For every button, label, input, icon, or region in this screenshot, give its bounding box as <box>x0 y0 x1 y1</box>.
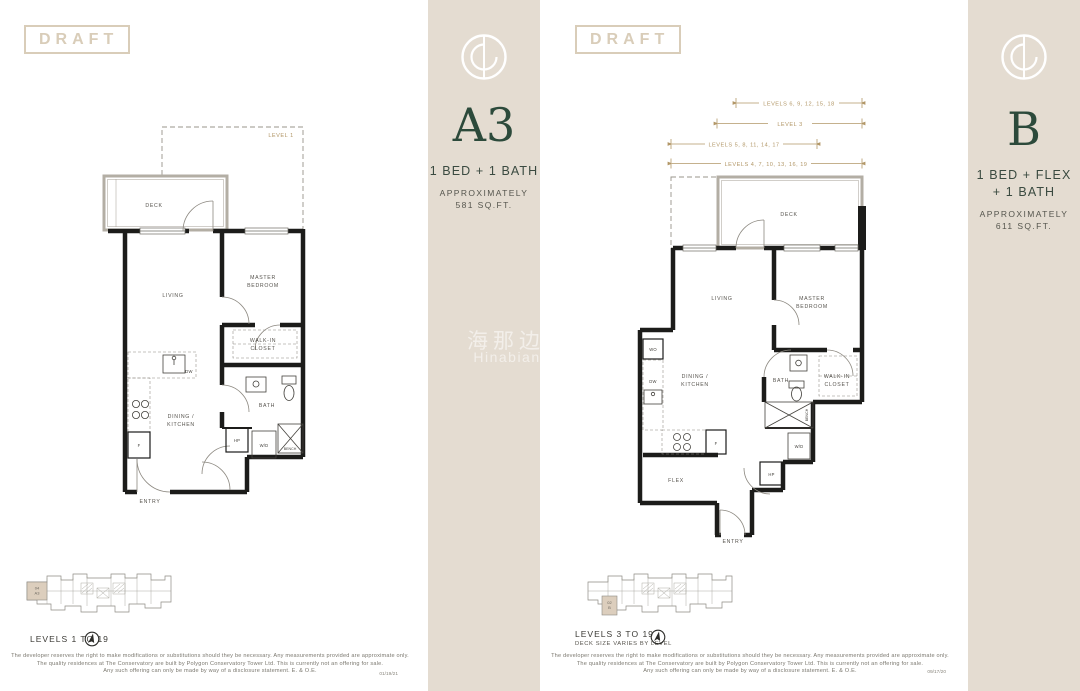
plan-name: B <box>968 106 1080 152</box>
flex-label: FLEX <box>668 478 684 484</box>
disclaimer-line: The quality residences at The Conservato… <box>540 661 960 669</box>
bench-label: BENCH <box>284 447 297 451</box>
north-arrow-icon <box>650 629 666 645</box>
deck-label: DECK <box>780 212 797 218</box>
plan-name: A3 <box>428 102 540 148</box>
disclaimer-line: Any such offering can only be made by wa… <box>540 668 960 676</box>
dining-label-1: DINING / <box>168 414 195 420</box>
disclaimer-line: The developer reserves the right to make… <box>540 653 960 661</box>
deck-wall-stub <box>858 206 866 250</box>
dining-label-2: KITCHEN <box>167 422 195 428</box>
page-plan-a3: DRAFT LEVEL 1 DECK <box>0 0 540 691</box>
master-label-2: BEDROOM <box>796 304 828 310</box>
washer-dryer-label: W/D <box>795 444 804 449</box>
disclaimer-line: The developer reserves the right to make… <box>0 653 420 661</box>
plan-type-1: 1 BED + FLEX <box>968 168 1080 182</box>
dishwasher-label: DW <box>649 379 656 384</box>
sidebar-a3: A3 1 BED + 1 BATH APPROXIMATELY 581 SQ.F… <box>428 0 540 691</box>
disclaimer-line: Any such offering can only be made by wa… <box>0 668 420 676</box>
bathroom <box>246 376 296 401</box>
plan-type: 1 BED + 1 BATH <box>428 164 540 178</box>
walkin-label-1: WALK-IN <box>250 338 276 344</box>
approx-area: 581 SQ.FT. <box>428 199 540 211</box>
bath-label: BATH <box>259 403 275 409</box>
floorplan-b: LEVELS 6, 9, 12, 15, 18 LEVEL 3 LEVELS 5… <box>540 0 968 560</box>
approx-label: APPROXIMATELY <box>968 208 1080 220</box>
washer-dryer-label: W/D <box>260 443 269 448</box>
conservatory-logo-icon <box>998 31 1050 83</box>
dim-label-1: LEVELS 6, 9, 12, 15, 18 <box>763 102 835 108</box>
master-label-1: MASTER <box>250 275 276 281</box>
north-arrow-icon <box>84 631 100 647</box>
walls <box>640 248 862 535</box>
keyplan-a3: 04 A3 <box>24 562 174 628</box>
dishwasher-label: DW <box>185 369 192 374</box>
master-label-1: MASTER <box>799 296 825 302</box>
deck-label: DECK <box>145 203 162 209</box>
dim-label-4: LEVELS 4, 7, 10, 13, 16, 19 <box>725 162 808 168</box>
bench-label: BENCH <box>805 408 809 421</box>
disclaimer: The developer reserves the right to make… <box>0 653 420 676</box>
living-label: LIVING <box>711 296 732 302</box>
bathroom <box>789 355 807 401</box>
master-label-2: BEDROOM <box>247 283 279 289</box>
bath-label: BATH <box>773 378 789 384</box>
kitchen: DW F <box>128 352 196 458</box>
conservatory-logo-icon <box>458 31 510 83</box>
dim-label-2: LEVEL 3 <box>777 122 802 128</box>
approx-label: APPROXIMATELY <box>428 187 540 199</box>
deck-dimensions: LEVELS 6, 9, 12, 15, 18 LEVEL 3 LEVELS 5… <box>671 98 862 169</box>
floorplan-a3: LEVEL 1 DECK <box>0 0 428 555</box>
keyplan-unit-plan: A3 <box>35 591 41 596</box>
sidebar-b: B 1 BED + FLEX + 1 BATH APPROXIMATELY 61… <box>968 0 1080 691</box>
wall-oven-label: WO <box>649 347 657 352</box>
plan-type-2: + 1 BATH <box>968 185 1080 199</box>
hp-label: HP <box>768 472 774 477</box>
keyplan-unit-plan: B <box>608 605 611 610</box>
revision-date: 09/17/20 <box>906 670 946 675</box>
fridge-label: F <box>138 443 141 448</box>
deck: DECK <box>104 176 227 230</box>
approx-area: 611 SQ.FT. <box>968 220 1080 232</box>
deck: DECK <box>671 177 866 250</box>
living-label: LIVING <box>162 293 183 299</box>
keyplan-b: 02 B <box>585 562 735 628</box>
utility: HP W/D BENCH <box>226 424 303 458</box>
room-labels: LIVING MASTER BEDROOM WALK-IN CLOSET BAT… <box>140 275 279 505</box>
walls <box>108 229 303 492</box>
revision-date: 01/19/21 <box>358 672 398 677</box>
dim-label-3: LEVELS 5, 8, 11, 14, 17 <box>708 143 779 149</box>
hp-label: HP <box>234 438 240 443</box>
fridge-label: F <box>715 441 718 446</box>
kitchen: WO DW F <box>643 339 726 454</box>
dining-label-1: DINING / <box>682 374 709 380</box>
floorplan-sheet: DRAFT LEVEL 1 DECK <box>0 0 1080 691</box>
walkin-label-2: CLOSET <box>251 346 276 352</box>
walkin-closet-millwork <box>233 330 297 358</box>
entry-label: ENTRY <box>723 539 744 545</box>
room-labels: LIVING MASTER BEDROOM BATH WALK-IN CLOSE… <box>668 296 850 545</box>
level-note: LEVEL 1 <box>268 133 293 139</box>
walkin-label-2: CLOSET <box>825 382 850 388</box>
walkin-label-1: WALK-IN <box>824 374 850 380</box>
page-plan-b: DRAFT LEVELS 6, 9, 12, 15, 18 LEVEL 3 <box>540 0 1080 691</box>
entry-label: ENTRY <box>140 499 161 505</box>
disclaimer: The developer reserves the right to make… <box>540 653 960 676</box>
disclaimer-line: The quality residences at The Conservato… <box>0 661 420 669</box>
utility: BENCH W/D HP <box>760 402 813 485</box>
dining-label-2: KITCHEN <box>681 382 709 388</box>
